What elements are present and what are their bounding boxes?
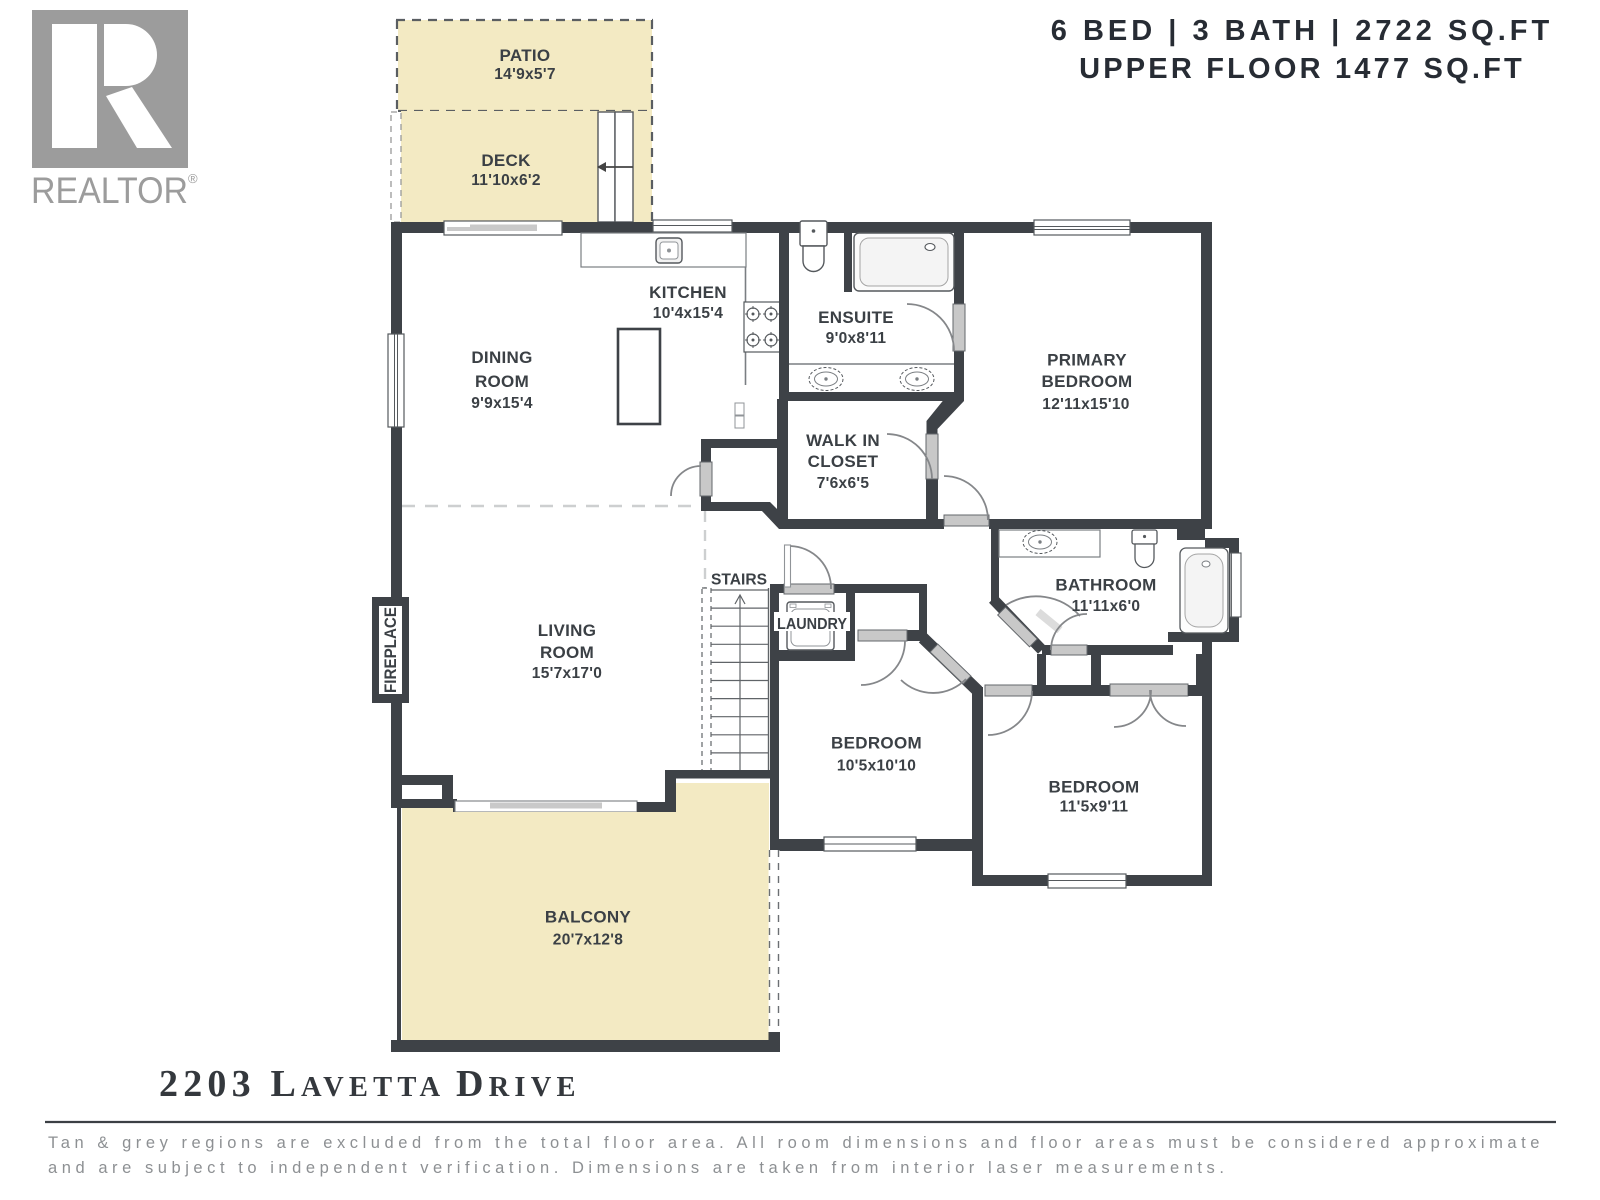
svg-text:BEDROOM: BEDROOM — [1042, 372, 1133, 391]
svg-text:STAIRS: STAIRS — [711, 572, 767, 589]
svg-text:9'0x8'11: 9'0x8'11 — [826, 330, 887, 347]
svg-text:BALCONY: BALCONY — [545, 908, 632, 927]
svg-text:LAUNDRY: LAUNDRY — [777, 616, 847, 633]
svg-text:7'6x6'5: 7'6x6'5 — [817, 475, 870, 492]
svg-text:6 BED | 3 BATH | 2722 SQ.FT: 6 BED | 3 BATH | 2722 SQ.FT — [1051, 15, 1553, 47]
svg-text:PRIMARY: PRIMARY — [1047, 351, 1127, 370]
svg-text:BEDROOM: BEDROOM — [831, 734, 922, 753]
svg-text:WALK IN: WALK IN — [806, 431, 880, 450]
svg-text:REALTOR: REALTOR — [31, 170, 188, 211]
svg-text:FIREPLACE: FIREPLACE — [382, 607, 400, 693]
svg-text:2203 LAVETTA DRIVE: 2203 LAVETTA DRIVE — [159, 1063, 581, 1105]
svg-text:and are subject to independent: and are subject to independent verificat… — [48, 1159, 1229, 1177]
svg-text:ROOM: ROOM — [475, 372, 529, 391]
svg-text:10'5x10'10: 10'5x10'10 — [837, 758, 916, 775]
svg-text:11'10x6'2: 11'10x6'2 — [471, 172, 541, 189]
svg-text:20'7x12'8: 20'7x12'8 — [553, 932, 623, 949]
svg-text:12'11x15'10: 12'11x15'10 — [1042, 396, 1129, 413]
svg-text:9'9x15'4: 9'9x15'4 — [471, 395, 533, 412]
svg-text:Tan & grey regions are exclude: Tan & grey regions are excluded from the… — [48, 1134, 1544, 1152]
svg-text:14'9x5'7: 14'9x5'7 — [494, 66, 556, 83]
svg-text:BEDROOM: BEDROOM — [1049, 778, 1140, 797]
svg-text:DECK: DECK — [481, 151, 531, 170]
svg-text:ROOM: ROOM — [540, 643, 594, 662]
svg-text:CLOSET: CLOSET — [808, 452, 879, 471]
svg-text:10'4x15'4: 10'4x15'4 — [653, 305, 723, 322]
svg-text:11'11x6'0: 11'11x6'0 — [1072, 598, 1141, 615]
svg-text:DINING: DINING — [471, 348, 532, 367]
svg-text:BATHROOM: BATHROOM — [1055, 576, 1156, 595]
svg-text:UPPER FLOOR 1477 SQ.FT: UPPER FLOOR 1477 SQ.FT — [1079, 53, 1525, 85]
svg-text:®: ® — [188, 171, 198, 186]
svg-text:KITCHEN: KITCHEN — [649, 283, 727, 302]
svg-text:15'7x17'0: 15'7x17'0 — [532, 665, 602, 682]
svg-text:PATIO: PATIO — [500, 46, 551, 65]
svg-text:11'5x9'11: 11'5x9'11 — [1060, 799, 1129, 816]
svg-text:LIVING: LIVING — [538, 621, 596, 640]
svg-text:ENSUITE: ENSUITE — [818, 308, 894, 327]
